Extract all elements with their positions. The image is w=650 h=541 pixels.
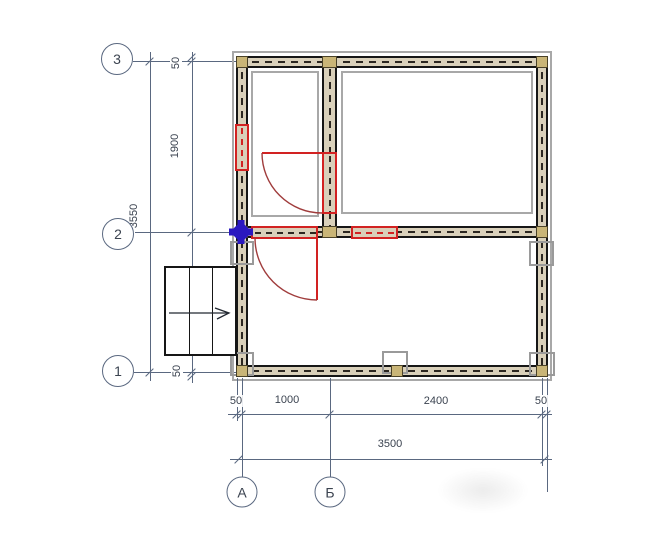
- window-left-wall: [235, 124, 249, 171]
- ext-line-axis-b: [330, 378, 331, 477]
- dim-label-bottom-50: 50: [171, 364, 183, 378]
- wall-right: [536, 56, 548, 377]
- axis-bubble-2: 2: [102, 218, 134, 250]
- room1-finish-outline: [251, 71, 319, 217]
- dim-label-top-50: 50: [170, 56, 182, 70]
- dim-label-2400: 2400: [423, 395, 449, 407]
- ext-line-axis-a: [242, 378, 243, 477]
- post-marker: [230, 241, 254, 265]
- wall-top: [236, 56, 548, 68]
- dim-label-1900: 1900: [169, 133, 181, 159]
- log-crossing: [322, 56, 337, 68]
- wall-left: [236, 56, 248, 377]
- room2-finish-outline: [341, 71, 533, 214]
- dim-label-right-50: 50: [534, 395, 548, 407]
- scan-artifact: [438, 468, 528, 513]
- dim-label-left-50: 50: [229, 395, 243, 407]
- log-crossing: [236, 56, 248, 68]
- axis-bubble-b-label: Б: [325, 484, 334, 500]
- axis-bubble-b: Б: [315, 477, 346, 508]
- post-marker: [529, 241, 554, 266]
- axis-bubble-a: А: [227, 477, 258, 508]
- dim-line-vertical-overall: [150, 52, 151, 381]
- axis-bubble-3: 3: [101, 43, 133, 75]
- stair: [164, 266, 237, 356]
- axis-bubble-2-label: 2: [114, 226, 122, 242]
- log-crossing: [536, 365, 548, 377]
- dim-label-1000: 1000: [274, 394, 300, 406]
- log-crossing: [536, 226, 548, 238]
- log-crossing: [322, 226, 337, 238]
- ext-line-right-axis: [542, 378, 543, 466]
- floor-plan: 50 1900 1550 50 3550 3 2 1: [0, 0, 650, 541]
- axis-bubble-1-label: 1: [114, 363, 122, 379]
- axis-bubble-1: 1: [102, 355, 134, 387]
- window-middle-wall: [351, 226, 398, 239]
- door-opening-middle-wall: [251, 226, 318, 239]
- log-crossing: [236, 365, 248, 377]
- dim-line-horizontal-chain: [228, 414, 552, 415]
- dim-label-3500: 3500: [377, 438, 403, 450]
- door-opening-partition: [322, 152, 337, 214]
- dim-line-horizontal-overall: [230, 459, 552, 460]
- stair-tread-line: [189, 268, 190, 354]
- log-crossing: [536, 56, 548, 68]
- axis-bubble-3-label: 3: [113, 51, 121, 67]
- log-crossing: [236, 226, 248, 238]
- stair-tread-line: [212, 268, 213, 354]
- log-crossing: [391, 365, 403, 377]
- axis-bubble-a-label: А: [237, 484, 246, 500]
